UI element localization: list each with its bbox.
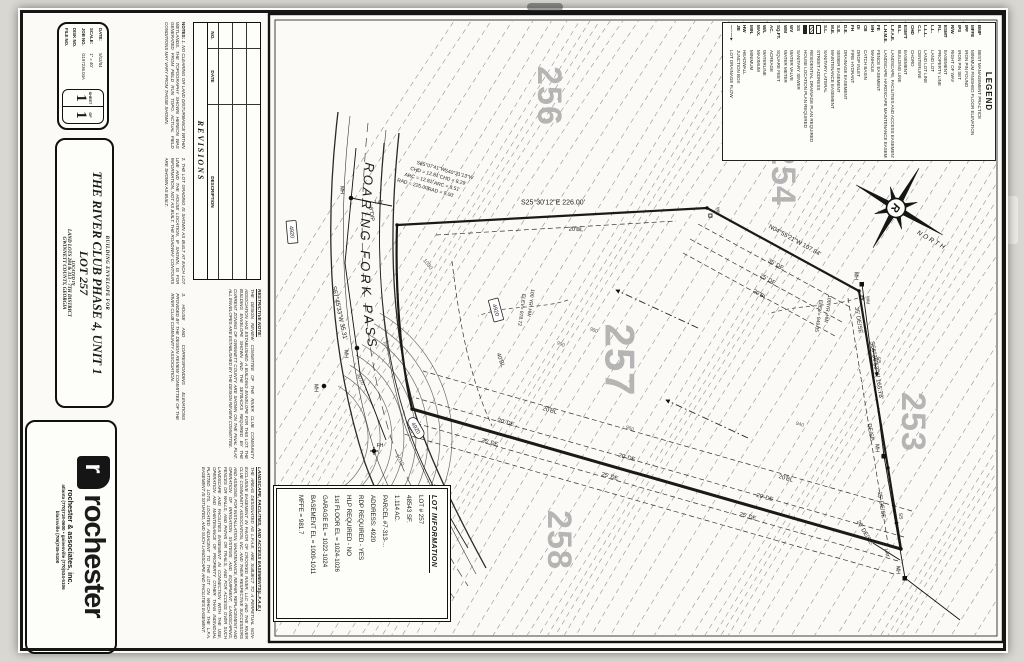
svg-text:100 YR. HW: 100 YR. HW: [822, 295, 832, 324]
manhole-icon: [860, 282, 865, 287]
legend-row: RESIDENTIAL DRAINAGE PLAN REQUIRED: [808, 25, 815, 158]
svg-text:LAT: LAT: [374, 199, 383, 206]
svg-text:40'BL: 40'BL: [495, 352, 506, 369]
plat-label: DE/SE: [866, 423, 875, 441]
svg-text:ROARING FORK PASS: ROARING FORK PASS: [358, 162, 381, 351]
plat-sheet: ROARING FORK PASS: [18, 8, 1008, 653]
plat-label: 20' DE: [618, 453, 636, 464]
legend-row: MHMANHOLE: [868, 25, 875, 158]
revisions-col-description: DESCRIPTION: [208, 105, 218, 279]
svg-text:253: 253: [894, 392, 932, 452]
plat-label: LAT: [374, 199, 383, 206]
plat-label: N04°55'21"W 107.84': [767, 223, 822, 258]
plat-label: 1030: [421, 258, 433, 271]
located-in: LOCATED IN: [71, 140, 76, 406]
legend-row: W/LWATERLINE: [761, 25, 768, 158]
legend-row: M.E.MAINTENANCE EASEMENT: [828, 25, 835, 158]
sheet-info-row: JOB NO. G197236.04A: [78, 28, 87, 86]
svg-text:20'BL: 20'BL: [569, 227, 585, 234]
restrictive-note-heading: RESTRICTIVE NOTE:: [256, 289, 261, 459]
legend-row: WVWATER VALVE: [788, 25, 795, 158]
legend-row: SQ.FT.SQUARE FEET: [774, 25, 781, 158]
revisions-title: REVISIONS: [194, 23, 207, 279]
svg-text:20'BL: 20'BL: [778, 474, 794, 484]
legend-row: WMWATER METER: [781, 25, 788, 158]
lot-number: 256: [530, 66, 568, 126]
manhole-icon: [903, 576, 908, 581]
scanned-plat-page: { "colors": {"paper":"#fbfaf6","ink":"#1…: [0, 0, 1024, 662]
sheet-info-row: DATE: 5/12/04: [95, 28, 104, 86]
legend-row: C.L.CENTERLINE: [915, 25, 922, 158]
scan-smudge: [527, 3, 563, 11]
plat-label: MH: [852, 272, 858, 280]
legend-row: MAX.MAXIMUM: [754, 25, 761, 158]
legend-row: L.F.A.E.LANDSCAPE, FACILITIES AND ACCESS…: [888, 25, 895, 158]
lot-info-line: MFFE = 981.7: [294, 495, 306, 621]
plat-label: SS: [875, 356, 882, 364]
legend-row: DIDROP INLET: [855, 25, 862, 158]
legend-row: HWHEADWALL: [741, 25, 748, 158]
plat-label: 20' DE/SE: [855, 520, 874, 546]
legend-row: S.L.SANITARY LATERAL: [821, 25, 828, 158]
plat-label: 20'BL: [542, 406, 558, 416]
manhole-icon: [355, 346, 360, 351]
logo-word: rochester: [77, 494, 110, 617]
north-arrow-compass: R: [833, 145, 966, 275]
plat-label: S25°30'12"E 226.00': [521, 198, 585, 206]
lfae-note: LANDSCAPE, FACILITIES, AND ACCESS EASEME…: [189, 467, 261, 639]
plat-label: 20'BL: [569, 227, 585, 234]
plat-label: 960: [625, 424, 635, 433]
svg-text:25' DE/SE: 25' DE/SE: [876, 492, 886, 519]
legend-row: L.L.L.LAND LOT LINE: [922, 25, 929, 158]
sheet-number: 1: [74, 90, 89, 106]
plat-label: MH: [338, 186, 344, 194]
legend-row: JBJUNCTION BOX: [734, 25, 741, 158]
lot-info-line: RDP REQUIRED - YES: [354, 495, 366, 621]
plat-label: 1010: [394, 454, 405, 468]
legend-row: —··—►LOT DRAINAGE FLOW: [727, 25, 734, 158]
contact-line-2: blairsville (706)745-5100: [55, 422, 61, 652]
land-lots: LAND LOTS 284 & 313 - 7TH DISTRICT: [66, 140, 71, 406]
legend-row: IPFIRON PIN FOUND: [962, 25, 969, 158]
legend-row: P.L.PROPERTY LINE: [935, 25, 942, 158]
lot-boundary: [395, 206, 902, 550]
plat-label: MH: [312, 384, 318, 392]
lot-info-line: 1.114 AC.: [390, 495, 402, 621]
sheet-info-row: SCALE: 1" = 40': [87, 28, 96, 86]
note-paragraph: 3. HOUSE AND CORRESPONDING ELEVATIONS PR…: [122, 293, 186, 420]
project-title: THE RIVER CLUB PHASE 4, UNIT 1: [90, 140, 104, 406]
lot-info-line: PARCEL #7-313-...: [378, 495, 390, 621]
lot-number: 257: [596, 323, 643, 396]
svg-text:DE/SE: DE/SE: [866, 423, 875, 441]
lot-number: 253: [894, 392, 932, 452]
title-pre: BUILDING ENVELOPE FOR: [104, 140, 109, 406]
svg-text:20'BL: 20'BL: [752, 289, 768, 302]
plat-label: LAT: [883, 548, 890, 558]
revisions-col-no: NO.: [208, 23, 218, 49]
legend-row: STREET ADDRESS: [814, 25, 821, 158]
legend-row: D.E.DRAINAGE EASEMENT: [841, 25, 848, 158]
sheet-info-row: DISK NO.: [70, 28, 79, 86]
legend-row: ESM'TEASEMENT: [902, 25, 909, 158]
plat-label: WM: [865, 296, 870, 304]
svg-text:4920: 4920: [288, 226, 295, 239]
legend: LEGEND BMPBEST MANAGEMENT PRACTICEMFFEMI…: [722, 22, 996, 161]
svg-text:WM: WM: [865, 296, 870, 304]
plat-label: ELEV= 978.72: [516, 293, 526, 326]
svg-text:N04°55'21"W 107.84': N04°55'21"W 107.84': [767, 223, 822, 258]
svg-text:SS: SS: [875, 356, 882, 364]
legend-row: S.E.SEWER EASEMENT: [835, 25, 842, 158]
plat-label: S66°36'53"W 165.78': [868, 341, 884, 400]
svg-text:S25°30'12"E 226.00': S25°30'12"E 226.00': [521, 198, 585, 206]
svg-text:MH: MH: [338, 186, 344, 194]
legend-row: BMPBEST MANAGEMENT PRACTICE: [975, 25, 982, 158]
plat-label: 20'BL: [752, 289, 768, 302]
plat-label: NORTH: [916, 229, 948, 252]
svg-text:258: 258: [540, 510, 578, 570]
plat-label: 100 YR. HW: [822, 295, 832, 324]
svg-text:990: 990: [556, 340, 566, 349]
lfae-note-body: THE AREAS DESIGNATED AS L.F.A.E. ARE SUB…: [201, 467, 255, 639]
legend-row: MIN.MINIMUM: [747, 25, 754, 158]
svg-text:MH: MH: [894, 566, 900, 574]
legend-row: AC.ACREAGE: [768, 25, 775, 158]
svg-text:MH: MH: [312, 384, 318, 392]
restrictive-note-body: THE DESIGN REVIEW COMMITTEE OF THE RIVER…: [228, 289, 255, 459]
plat-label: ELEV= 949.35: [813, 299, 823, 332]
county: GWINNETT COUNTY, GEORGIA: [61, 140, 66, 406]
restrictive-note: RESTRICTIVE NOTE: THE DESIGN REVIEW COMM…: [189, 289, 261, 459]
legend-row: L.L.LAND LOT: [928, 25, 935, 158]
svg-text:20' DE: 20' DE: [497, 418, 515, 429]
street-address-tag: 4920: [488, 298, 503, 322]
plat-label: MH: [873, 444, 879, 452]
revisions-empty-row: [218, 23, 232, 279]
note-paragraph: 2. THE LOT GRADING IS SHOWN AS BUILT AT …: [122, 158, 186, 285]
legend-row: ESMTEASEMENT: [942, 25, 949, 158]
plat-label: 25' DE/SE: [876, 492, 886, 519]
sheet-info-row: FILE NO.: [61, 28, 70, 86]
svg-text:100 YR. HW: 100 YR. HW: [525, 289, 535, 318]
svg-text:25' DE: 25' DE: [481, 438, 499, 449]
svg-text:20' DE: 20' DE: [756, 493, 774, 504]
sheet-label: SHEET: [89, 90, 93, 106]
svg-text:1030: 1030: [421, 258, 433, 271]
revisions-table: NO. DATE DESCRIPTION REVISIONS: [193, 22, 261, 280]
plat-label: 20' DE: [497, 418, 515, 429]
lot-info-line: ADDRESS: 4920: [366, 495, 378, 621]
lfae-note-heading: LANDSCAPE, FACILITIES, AND ACCESS EASEME…: [256, 467, 261, 639]
lot-info-line: 48543 SF.: [402, 495, 414, 621]
plat-label: MH: [894, 566, 900, 574]
contact-line-1: atlanta (770)718-0600 • gainesville (770…: [60, 422, 66, 652]
lot-info-line: GARAGE EL = 1022-1024: [318, 495, 330, 621]
legend-row: HOUSE LOCATION PLAN REQUIRED: [801, 25, 808, 158]
street-name: ROARING FORK PASS: [358, 162, 381, 351]
legend-row: IPSIRON PIN SET: [955, 25, 962, 158]
plat-label: 20' DE: [756, 493, 774, 504]
svg-text:FH: FH: [377, 443, 384, 449]
of-number: 1: [74, 107, 89, 123]
plat-label: MH: [342, 350, 348, 358]
legend-row: L.H.M.E.LANDSCAPE HARDSCAPE MAINTENANCE …: [881, 25, 888, 158]
street-address-tag: 4920: [286, 220, 298, 243]
title-block: BUILDING ENVELOPE FOR THE RIVER CLUB PHA…: [55, 138, 114, 408]
lot-title: LOT 257: [77, 140, 90, 406]
manhole-icon: [882, 454, 887, 459]
plat-label: 25' DE: [739, 512, 757, 523]
water-meter-icon: [709, 214, 712, 217]
svg-text:LAT: LAT: [883, 548, 890, 558]
svg-text:20'BL: 20'BL: [542, 406, 558, 416]
lot-information-title: LOT INFORMATION: [429, 495, 437, 573]
revisions-header-row: NO. DATE DESCRIPTION: [207, 23, 218, 279]
manhole-icon: [322, 384, 327, 389]
plat-label: 1020: [355, 373, 365, 387]
revisions-empty-row: [232, 23, 246, 279]
svg-text:20' DE/SE: 20' DE/SE: [855, 520, 874, 546]
legend-row: CHDCHORD: [908, 25, 915, 158]
note-paragraph: NOTES: 1. NO CLEARING OR LAND DISTURBANC…: [122, 22, 186, 149]
rochester-logo-icon: r: [77, 456, 110, 489]
svg-text:960: 960: [625, 424, 635, 433]
lot-info-line: LOT # 257: [414, 495, 426, 621]
legend-title: LEGEND: [984, 25, 993, 158]
plat-label: FH: [377, 443, 384, 449]
svg-text:1010: 1010: [394, 454, 405, 468]
plat-label: 100 YR. HW: [525, 289, 535, 318]
svg-text:940: 940: [795, 421, 805, 429]
svg-text:MH: MH: [852, 272, 858, 280]
legend-row: SSSANITARY SEWER: [794, 25, 801, 158]
svg-text:ELEV= 949.35: ELEV= 949.35: [813, 299, 823, 332]
svg-text:MH: MH: [342, 350, 348, 358]
legend-row: CBCATCH BASIN: [861, 25, 868, 158]
plat-label: 990: [556, 340, 566, 349]
general-notes: NOTES: 1. NO CLEARING OR LAND DISTURBANC…: [122, 22, 186, 420]
legend-row: FEFENCE EASEMENT: [875, 25, 882, 158]
svg-text:MH: MH: [873, 444, 879, 452]
lot-info-line: HLP REQUIRED - NO: [342, 495, 354, 621]
svg-text:SS: SS: [897, 512, 904, 520]
svg-text:1020: 1020: [355, 373, 365, 387]
legend-row: MFFEMINIMUM FINISHED FLOOR ELEVATION: [969, 25, 976, 158]
svg-text:20' DE: 20' DE: [618, 453, 636, 464]
svg-text:S66°36'53"W 165.78': S66°36'53"W 165.78': [868, 341, 884, 400]
svg-text:256: 256: [530, 66, 568, 126]
legend-row: R/WRIGHT OF WAY: [948, 25, 955, 158]
plat-label: 20'BL: [778, 474, 794, 484]
lot-info-line: 1st FLOOR EL = 1024-1026: [330, 495, 342, 621]
plat-label: 25' DE: [481, 438, 499, 449]
plat-label: 940: [795, 421, 805, 429]
revisions-col-date: DATE: [208, 49, 218, 105]
plat-label: 25' DE: [759, 273, 777, 287]
easement-lines: [404, 221, 912, 574]
revisions-empty-row: [246, 23, 260, 279]
svg-text:NORTH: NORTH: [916, 229, 948, 252]
surveyor-logo-box: r rochester rochester & associates, inc.…: [25, 420, 117, 654]
legend-row: FHFIRE HYDRANT: [848, 25, 855, 158]
sheet-number-box: SHEET 1 OF 1: [62, 89, 104, 124]
svg-text:25' DE: 25' DE: [759, 273, 777, 287]
svg-text:25' DE: 25' DE: [739, 512, 757, 523]
svg-text:WM: WM: [715, 207, 720, 215]
plat-label: WM: [715, 207, 720, 215]
lot-info-line: BASEMENT EL = 1009-1011: [306, 495, 318, 621]
svg-text:257: 257: [596, 323, 643, 396]
firm-name: rochester & associates, inc.: [66, 422, 75, 652]
legend-row: B.L.BUILDING LINE: [895, 25, 902, 158]
lot-number: 258: [540, 510, 578, 570]
of-label: OF: [89, 107, 93, 123]
lot-information-box: LOT INFORMATION LOT # 25748543 SF.1.114 …: [273, 485, 451, 622]
sheet-info-box: DATE: 5/12/04SCALE: 1" = 40'JOB NO. G197…: [57, 22, 109, 130]
plat-label: 40'BL: [495, 352, 506, 369]
plat-label: SS: [897, 512, 904, 520]
svg-text:ELEV= 978.72: ELEV= 978.72: [516, 293, 526, 326]
